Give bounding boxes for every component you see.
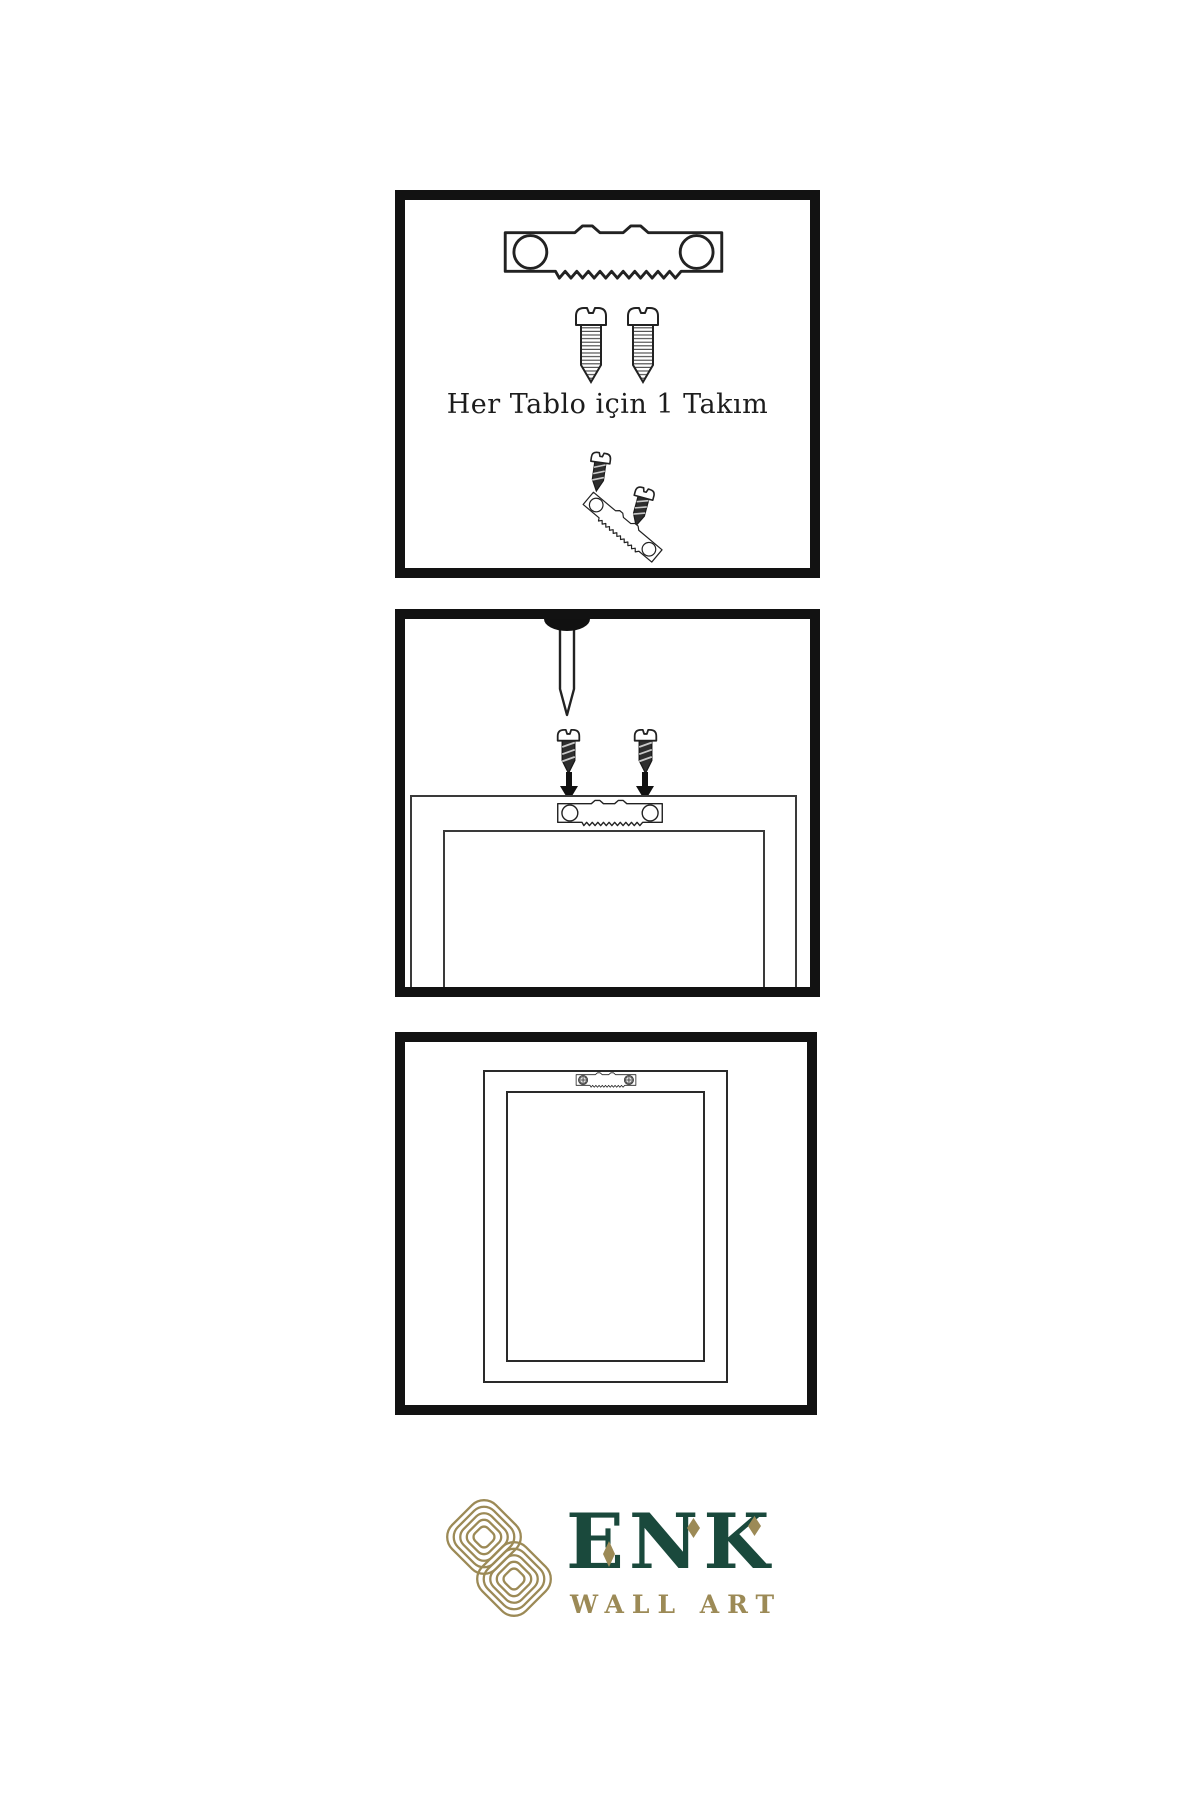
panel-hardware-kit: Her Tablo için 1 Takım: [395, 190, 820, 578]
sawtooth-hanger-icon: [553, 799, 667, 827]
panel-mounting-steps: [395, 609, 820, 997]
screw-icon: [555, 728, 582, 775]
brand-name: ENK: [566, 1502, 774, 1582]
wall-frame-inner: [506, 1091, 705, 1362]
knot-logo-icon: [440, 1490, 558, 1626]
brand-logo: ENK WALL ART: [440, 1488, 800, 1633]
sawtooth-hanger-mounted-icon: [573, 1072, 639, 1088]
instruction-sheet: Her Tablo için 1 Takım: [0, 0, 1200, 1800]
assembly-example: [405, 200, 810, 568]
frame-back-inner: [443, 830, 765, 997]
panel-hung-frame: [395, 1032, 817, 1415]
screw-icon: [584, 450, 614, 495]
wall-frame-outer: [483, 1070, 728, 1383]
screw-icon: [632, 728, 659, 775]
nail-icon: [543, 619, 591, 719]
brand-subtitle: WALL ART: [570, 1590, 782, 1619]
